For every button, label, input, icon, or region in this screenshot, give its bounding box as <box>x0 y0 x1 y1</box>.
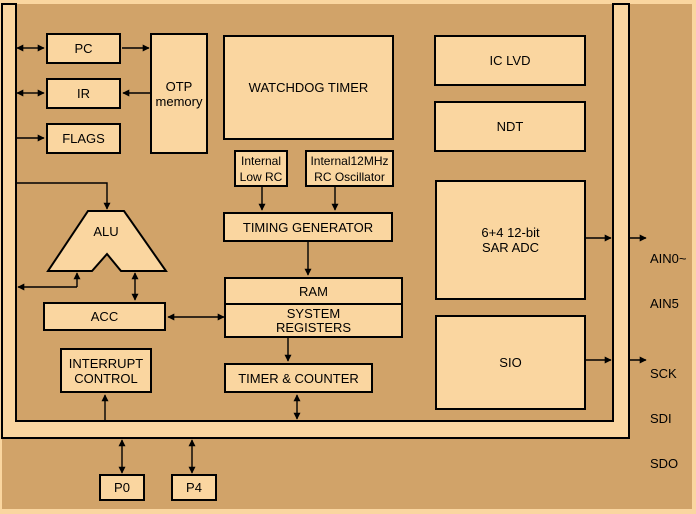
sdo-label: SDO <box>650 456 678 471</box>
sio-label: SIO <box>499 355 521 370</box>
ic-lvd-label: IC LVD <box>490 53 531 68</box>
alu-label: ALU <box>86 224 126 239</box>
block-diagram: PC IR FLAGS OTP memory WATCHDOG TIMER In… <box>0 0 696 514</box>
timing-generator-label: TIMING GENERATOR <box>243 220 373 235</box>
rc-oscillator-block: Internal12MHz RC Oscillator <box>305 150 394 187</box>
rc-osc-line1: Internal12MHz <box>310 153 388 169</box>
p4-port-block: P4 <box>171 474 217 501</box>
acc-block: ACC <box>43 302 166 331</box>
adc-line1: 6+4 12-bit <box>481 225 539 240</box>
flags-label: FLAGS <box>62 131 105 146</box>
timer-counter-label: TIMER & COUNTER <box>238 371 359 386</box>
flags-block: FLAGS <box>46 123 121 154</box>
otp-label-line1: OTP <box>166 79 193 94</box>
sdi-label: SDI <box>650 411 678 426</box>
sar-adc-block: 6+4 12-bit SAR ADC <box>435 180 586 300</box>
pc-label: PC <box>74 41 92 56</box>
sio-pin-labels: SCK SDI SDO <box>650 336 678 501</box>
ram-label: RAM <box>299 284 328 299</box>
adc-pin-labels: AIN0~ AIN5 <box>650 221 687 341</box>
interrupt-control-block: INTERRUPT CONTROL <box>60 348 152 393</box>
otp-label-line2: memory <box>156 94 203 109</box>
p0-port-block: P0 <box>99 474 145 501</box>
ic-lvd-block: IC LVD <box>434 35 586 86</box>
watchdog-timer-block: WATCHDOG TIMER <box>223 35 394 140</box>
sio-block: SIO <box>435 315 586 410</box>
pc-block: PC <box>46 33 121 64</box>
ndt-block: NDT <box>434 101 586 152</box>
timer-counter-block: TIMER & COUNTER <box>224 363 373 393</box>
rc-osc-line2: RC Oscillator <box>314 169 385 185</box>
ram-system-registers-block: RAM SYSTEM REGISTERS <box>224 277 403 338</box>
p4-label: P4 <box>186 480 202 495</box>
ram-section: RAM <box>226 279 401 305</box>
system-registers-section: SYSTEM REGISTERS <box>226 305 401 336</box>
otp-memory-block: OTP memory <box>150 33 208 154</box>
ndt-label: NDT <box>497 119 524 134</box>
sys-reg-line2: REGISTERS <box>276 321 351 335</box>
alu-shape <box>48 211 166 271</box>
adc-line2: SAR ADC <box>482 240 539 255</box>
timing-generator-block: TIMING GENERATOR <box>223 212 393 242</box>
internal-low-rc-block: Internal Low RC <box>234 150 288 187</box>
low-rc-line1: Internal <box>241 153 281 169</box>
watchdog-label: WATCHDOG TIMER <box>249 80 369 95</box>
p0-label: P0 <box>114 480 130 495</box>
acc-label: ACC <box>91 309 118 324</box>
ain5-label: AIN5 <box>650 296 687 311</box>
interrupt-line1: INTERRUPT <box>69 356 143 371</box>
interrupt-line2: CONTROL <box>74 371 138 386</box>
low-rc-line2: Low RC <box>240 169 283 185</box>
sck-label: SCK <box>650 366 678 381</box>
ain0-label: AIN0~ <box>650 251 687 266</box>
sys-reg-line1: SYSTEM <box>287 307 340 321</box>
ir-label: IR <box>77 86 90 101</box>
ir-block: IR <box>46 78 121 109</box>
